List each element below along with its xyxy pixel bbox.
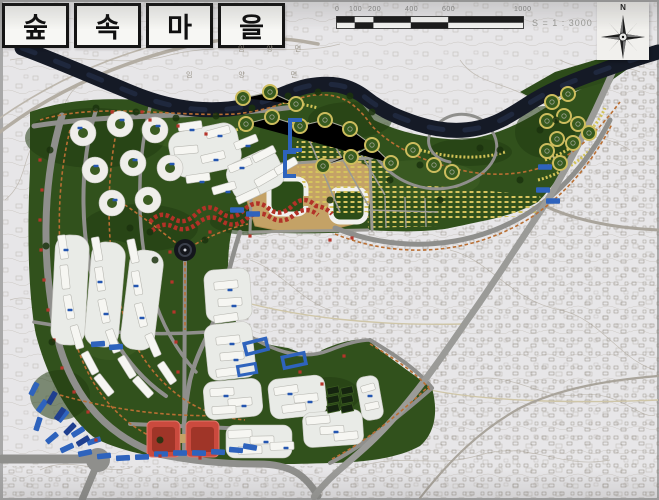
compass-star xyxy=(597,10,649,60)
scale-tick: 200 xyxy=(368,6,381,13)
scale-tick: 400 xyxy=(405,6,418,13)
title-char: 을 xyxy=(239,6,264,45)
scale-tick: 600 xyxy=(442,6,455,13)
region-label: 임 양 면 xyxy=(238,44,311,54)
scale-tick: 100 xyxy=(349,6,362,13)
title-char: 숲 xyxy=(23,6,48,45)
title-char: 속 xyxy=(95,6,120,45)
scale-tick: 0 xyxy=(335,6,339,13)
model-board-photo: 숲 속 마 을 0 100 200 400 600 1000 S = 1 : 3… xyxy=(0,0,659,500)
scale-tick-labels: 0 100 200 400 600 1000 xyxy=(336,6,616,15)
title-char-box: 속 xyxy=(74,3,141,48)
pond xyxy=(174,239,196,261)
scale-bar-checker xyxy=(336,16,526,30)
plan-title: 숲 속 마 을 xyxy=(2,3,285,48)
site-plan-map xyxy=(0,0,659,500)
title-char: 마 xyxy=(167,6,192,45)
scale-ratio-text: S = 1 : 3000 xyxy=(532,18,593,28)
compass-rose: N xyxy=(597,2,649,60)
title-char-box: 마 xyxy=(146,3,213,48)
scale-tick: 1000 xyxy=(514,6,532,13)
scale-bar: 0 100 200 400 600 1000 S = 1 : 3000 xyxy=(336,6,616,36)
title-char-box: 을 xyxy=(218,3,285,48)
title-char-box: 숲 xyxy=(2,3,69,48)
region-label: 임 양 면 xyxy=(186,70,319,80)
